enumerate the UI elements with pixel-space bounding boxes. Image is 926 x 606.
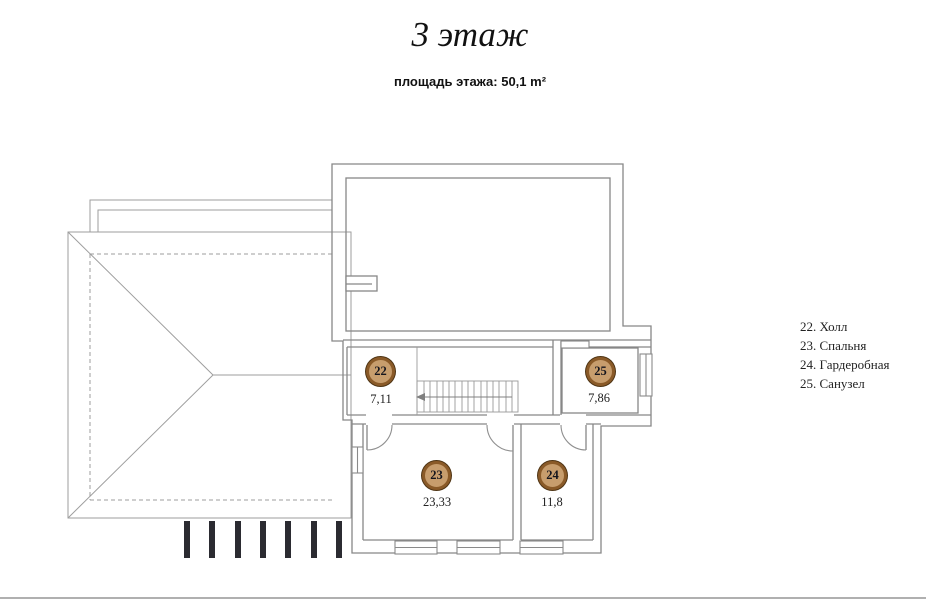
floor-area-subtitle: площадь этажа: 50,1 m² (394, 74, 546, 89)
room-legend: 22. Холл 23. Спальня 24. Гардеробная 25.… (800, 317, 890, 393)
room-marker-25-number: 25 (594, 364, 607, 379)
legend-item-24: 24. Гардеробная (800, 355, 890, 374)
door-leaves (367, 425, 586, 450)
window-bottom-2 (457, 541, 500, 554)
room-marker-23-number: 23 (430, 468, 443, 483)
window-right (640, 354, 652, 396)
floor-plan-page: 3 этаж площадь этажа: 50,1 m² 22. Холл 2… (0, 0, 926, 606)
bottom-divider (0, 597, 926, 599)
chimney-notch (346, 276, 377, 291)
legend-item-23: 23. Спальня (800, 336, 890, 355)
room-22-area: 7,11 (341, 392, 421, 407)
room-marker-22: 22 (366, 357, 395, 386)
door-arc-room24 (561, 425, 586, 450)
room-25-area: 7,86 (559, 391, 639, 406)
legend-item-25: 25. Санузел (800, 374, 890, 393)
room-24-area: 11,8 (512, 495, 592, 510)
page-title: 3 этаж (412, 16, 529, 54)
room-marker-24-number: 24 (546, 468, 559, 483)
divider-23-24 (513, 424, 521, 540)
floor-plan-drawing (0, 0, 926, 606)
door-arc-room23-left (367, 425, 392, 450)
room-marker-25: 25 (586, 357, 615, 386)
top-room-inner (346, 178, 610, 331)
roof-outline (68, 200, 351, 518)
room-marker-24: 24 (538, 461, 567, 490)
door-arc-room23-right (487, 425, 513, 451)
lower-floor-step-lines (90, 200, 332, 232)
beam-marks (184, 521, 342, 558)
window-bottom-1 (395, 541, 437, 554)
room-23-area: 23,33 (397, 495, 477, 510)
room-marker-23: 23 (422, 461, 451, 490)
window-bottom-3 (520, 541, 563, 554)
staircase (416, 347, 518, 415)
legend-item-22: 22. Холл (800, 317, 890, 336)
stair-outline (417, 381, 518, 412)
window-left (352, 447, 363, 473)
stair-treads (424, 381, 512, 412)
room25-doorway-lintel (561, 341, 589, 348)
room-marker-22-number: 22 (374, 364, 387, 379)
door-arcs (367, 425, 586, 451)
roof-hip-lines (68, 232, 351, 518)
